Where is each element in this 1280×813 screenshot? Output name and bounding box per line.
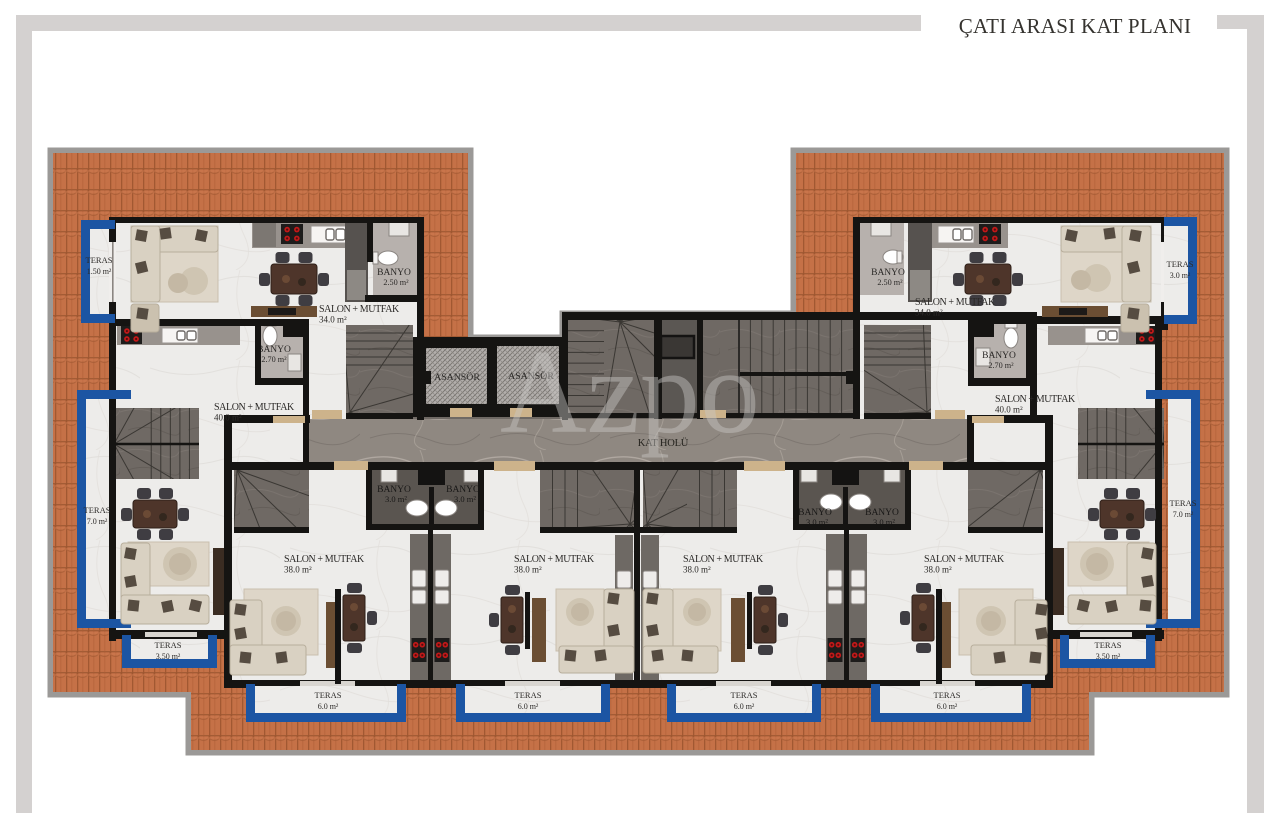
svg-text:BANYO: BANYO xyxy=(257,345,291,355)
svg-text:2.50 m²: 2.50 m² xyxy=(877,278,903,287)
svg-text:SALON + MUTFAK: SALON + MUTFAK xyxy=(319,304,400,315)
svg-text:TERAS: TERAS xyxy=(1167,259,1194,269)
svg-text:Azpo: Azpo xyxy=(500,325,760,458)
svg-text:2.70 m²: 2.70 m² xyxy=(261,355,287,364)
svg-text:40.0 m²: 40.0 m² xyxy=(995,405,1023,415)
svg-text:BANYO: BANYO xyxy=(982,351,1016,361)
svg-text:SALON + MUTFAK: SALON + MUTFAK xyxy=(683,554,764,565)
svg-text:TERAS: TERAS xyxy=(731,690,758,700)
svg-text:SALON + MUTFAK: SALON + MUTFAK xyxy=(214,402,295,413)
svg-text:3.50 m²: 3.50 m² xyxy=(1096,652,1121,661)
svg-text:TERAS: TERAS xyxy=(315,690,342,700)
svg-text:SALON + MUTFAK: SALON + MUTFAK xyxy=(915,297,996,308)
svg-text:6.0 m²: 6.0 m² xyxy=(734,702,755,711)
svg-text:7.0 m²: 7.0 m² xyxy=(1173,510,1194,519)
svg-text:TERAS: TERAS xyxy=(515,690,542,700)
svg-text:38.0 m²: 38.0 m² xyxy=(924,565,952,575)
svg-text:BANYO: BANYO xyxy=(377,268,411,278)
svg-text:6.0 m²: 6.0 m² xyxy=(318,702,339,711)
svg-text:3.0 m²: 3.0 m² xyxy=(454,494,476,504)
svg-text:6.0 m²: 6.0 m² xyxy=(937,702,958,711)
svg-text:SALON + MUTFAK: SALON + MUTFAK xyxy=(995,394,1076,405)
svg-text:TERAS: TERAS xyxy=(84,505,111,515)
svg-text:3.0 m²: 3.0 m² xyxy=(1170,271,1191,280)
svg-text:TERAS: TERAS xyxy=(1170,498,1197,508)
svg-text:40.0 m²: 40.0 m² xyxy=(214,413,242,423)
svg-text:ASANSÖR: ASANSÖR xyxy=(434,371,480,383)
svg-text:SALON + MUTFAK: SALON + MUTFAK xyxy=(284,554,365,565)
svg-text:34.0 m²: 34.0 m² xyxy=(319,315,347,325)
svg-text:TERAS: TERAS xyxy=(1095,640,1122,650)
svg-text:1.50 m²: 1.50 m² xyxy=(87,267,112,276)
svg-text:TERAS: TERAS xyxy=(155,640,182,650)
svg-text:34.0 m²: 34.0 m² xyxy=(915,308,943,318)
svg-text:7.0 m²: 7.0 m² xyxy=(87,517,108,526)
svg-text:BANYO: BANYO xyxy=(871,268,905,278)
svg-text:38.0 m²: 38.0 m² xyxy=(284,565,312,575)
svg-text:38.0 m²: 38.0 m² xyxy=(683,565,711,575)
svg-text:TERAS: TERAS xyxy=(934,690,961,700)
svg-text:2.70 m²: 2.70 m² xyxy=(988,361,1014,370)
svg-text:SALON + MUTFAK: SALON + MUTFAK xyxy=(924,554,1005,565)
svg-text:3.50 m²: 3.50 m² xyxy=(156,652,181,661)
svg-text:38.0 m²: 38.0 m² xyxy=(514,565,542,575)
svg-text:2.50 m²: 2.50 m² xyxy=(383,278,409,287)
svg-text:TERAS: TERAS xyxy=(86,255,113,265)
svg-text:6.0 m²: 6.0 m² xyxy=(518,702,539,711)
svg-text:ÇATI ARASI KAT PLANI: ÇATI ARASI KAT PLANI xyxy=(959,14,1192,38)
svg-text:3.0 m²: 3.0 m² xyxy=(385,494,407,504)
svg-text:SALON + MUTFAK: SALON + MUTFAK xyxy=(514,554,595,565)
